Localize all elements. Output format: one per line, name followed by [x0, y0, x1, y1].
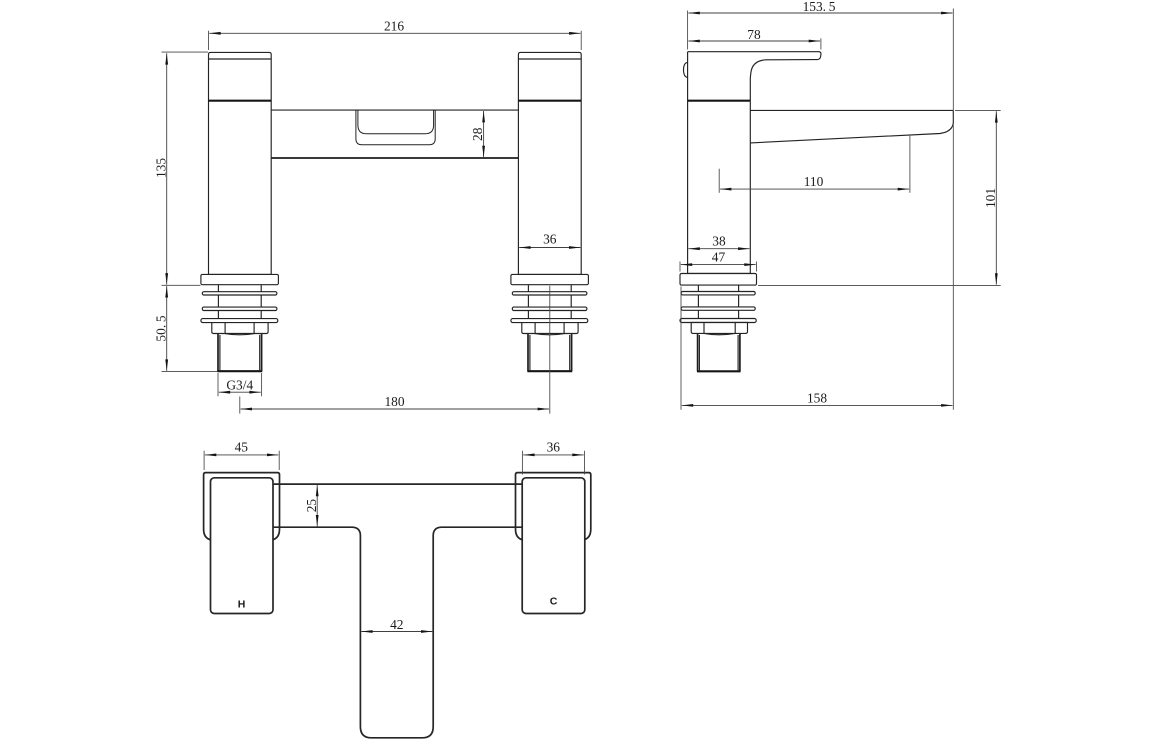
- svg-text:110: 110: [804, 174, 824, 189]
- svg-text:36: 36: [543, 232, 557, 247]
- svg-text:42: 42: [390, 617, 403, 632]
- svg-text:C: C: [550, 596, 558, 608]
- svg-text:H: H: [238, 599, 246, 611]
- svg-text:45: 45: [235, 440, 249, 455]
- svg-text:28: 28: [470, 127, 485, 141]
- svg-text:180: 180: [384, 394, 404, 409]
- svg-text:153. 5: 153. 5: [803, 0, 836, 14]
- svg-text:36: 36: [547, 440, 561, 455]
- svg-text:47: 47: [712, 249, 726, 264]
- svg-text:216: 216: [384, 19, 404, 34]
- svg-text:25: 25: [304, 499, 319, 513]
- svg-text:50. 5: 50. 5: [153, 315, 168, 341]
- svg-text:101: 101: [983, 188, 998, 208]
- svg-text:135: 135: [153, 158, 168, 178]
- svg-text:G3/4: G3/4: [226, 377, 253, 392]
- svg-text:38: 38: [712, 233, 726, 248]
- svg-text:158: 158: [807, 390, 827, 405]
- svg-text:78: 78: [747, 27, 761, 42]
